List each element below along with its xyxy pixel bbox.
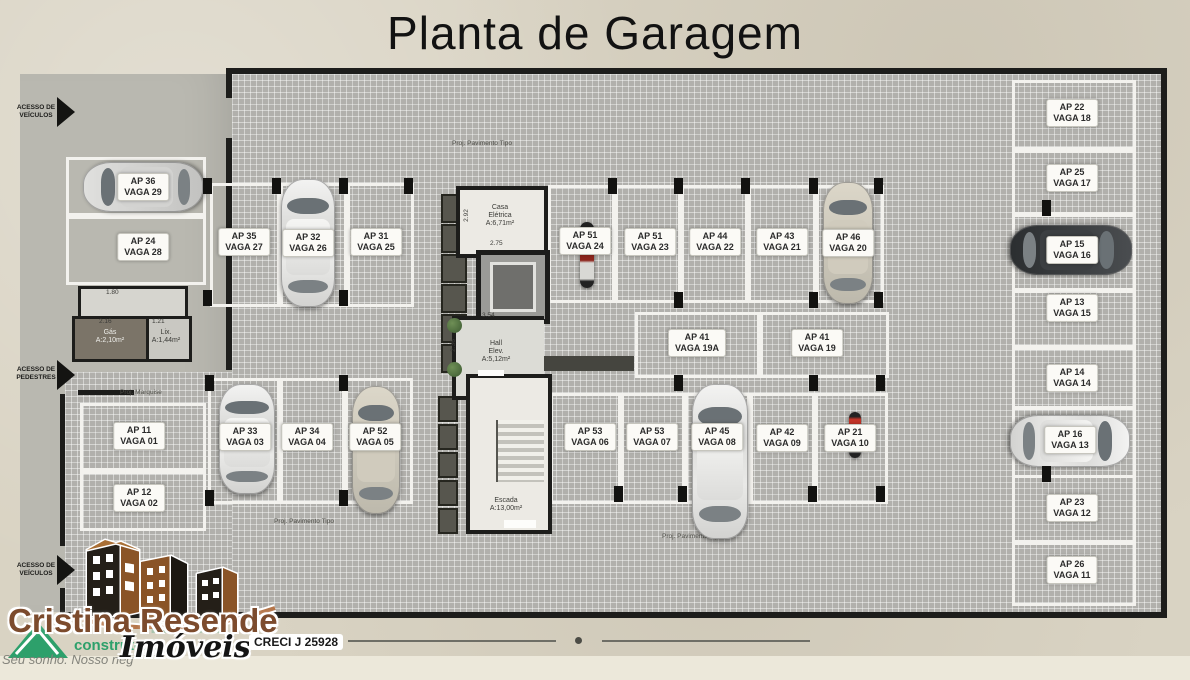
arrow-right-icon (57, 97, 75, 127)
spot-label: AP 23VAGA 12 (1046, 494, 1098, 522)
access-vehicles-top-label: ACESSO DEVEÍCULOS (14, 104, 58, 120)
spot-label: AP 25VAGA 17 (1046, 164, 1098, 192)
carousel-dot (575, 637, 582, 644)
spot-label: AP 31VAGA 25 (350, 228, 402, 256)
pillar-post (678, 486, 687, 502)
page-title: Planta de Garagem (0, 6, 1190, 60)
pillar-post (339, 178, 348, 194)
watermark-tagline: Seu sonho. Nosso neg (2, 652, 134, 667)
pillar-post (741, 178, 750, 194)
spot-label: AP 34VAGA 04 (281, 423, 333, 451)
pillar-post (339, 375, 348, 391)
spot-label: AP 43VAGA 21 (756, 228, 808, 256)
dimension-text: 1.21 (152, 318, 165, 325)
pillar-post (808, 486, 817, 502)
access-pedestrians-label: ACESSO DEPEDESTRES (14, 366, 58, 382)
pillar-post (876, 486, 885, 502)
spot-label: AP 11VAGA 01 (113, 422, 165, 450)
spot-label: AP 41VAGA 19 (791, 329, 843, 357)
spot-label: AP 51VAGA 24 (559, 227, 611, 255)
door-mat (504, 520, 536, 528)
car-top-view (692, 384, 748, 539)
pillar-post (809, 292, 818, 308)
storage-box (438, 424, 458, 450)
wall-top (226, 68, 1167, 74)
brand-subname: Imóveis (120, 630, 251, 665)
pillar-post (203, 290, 212, 306)
pillar-post (1042, 200, 1051, 216)
storage-box (438, 480, 458, 506)
dimension-text: 2.16 (99, 318, 112, 325)
stairs-treads (496, 420, 544, 482)
pillar-post (203, 178, 212, 194)
storage-box (438, 508, 458, 534)
spot-label: AP 53VAGA 06 (564, 423, 616, 451)
pillar-post (674, 375, 683, 391)
pillar-post (205, 375, 214, 391)
stairwell-label: EscadaA:13,00m² (490, 497, 522, 513)
room-gas-label: GásA:2,10m² (96, 329, 124, 345)
spot-label: AP 36VAGA 29 (117, 173, 169, 201)
spot-label: AP 45VAGA 08 (691, 423, 743, 451)
spot-label: AP 44VAGA 22 (689, 228, 741, 256)
room-lixo-label: Lix.A:1,44m² (152, 329, 180, 345)
pillar-post (205, 490, 214, 506)
pillar-post (809, 375, 818, 391)
pillar-post (1042, 466, 1051, 482)
spot-label: AP 15VAGA 16 (1046, 236, 1098, 264)
creci-badge: CRECI J 25928 (249, 634, 343, 650)
room-hall-label: HallElev.A:5,12m² (482, 340, 510, 364)
garage-floor-plan: Planta de Garagem ACESSO DEVEÍCULOS ACES… (0, 0, 1190, 680)
spot-label: AP 35VAGA 27 (218, 228, 270, 256)
pillar-post (404, 178, 413, 194)
pillar-post (874, 178, 883, 194)
spot-label: AP 53VAGA 07 (626, 423, 678, 451)
storage-box (438, 452, 458, 478)
pillar-post (614, 486, 623, 502)
divider-line (348, 640, 556, 642)
spot-label: AP 24VAGA 28 (117, 233, 169, 261)
plant-icon (447, 318, 462, 333)
spot-label: AP 42VAGA 09 (756, 424, 808, 452)
dimension-text: 2.36 (450, 339, 457, 352)
spot-label: AP 33VAGA 03 (219, 423, 271, 451)
spot-label: AP 14VAGA 14 (1046, 364, 1098, 392)
spot-label: AP 51VAGA 23 (624, 228, 676, 256)
realtor-logo: IDADE construtora Seu sonho. Nosso neg (0, 524, 345, 674)
pillar-post (674, 292, 683, 308)
spot-label: AP 41VAGA 19A (668, 329, 726, 357)
room-casa-eletrica-label: CasaElétricaA:6,71m² (486, 204, 514, 228)
wall-left-segment-a (226, 68, 232, 98)
storage-box (441, 254, 467, 283)
dimension-text: 1.80 (106, 289, 119, 296)
pillar-post (608, 178, 617, 194)
storage-box (441, 284, 467, 313)
spot-label: AP 13VAGA 15 (1046, 294, 1098, 322)
spot-label: AP 21VAGA 10 (824, 424, 876, 452)
spot-label: AP 26VAGA 11 (1046, 556, 1097, 584)
spot-label: AP 32VAGA 26 (282, 229, 334, 257)
dimension-text: 2.75 (490, 240, 503, 247)
corridor-mat (544, 356, 634, 371)
plant-icon (447, 362, 462, 377)
arrow-right-icon (57, 360, 75, 390)
annotation-proj-pavimento-tipo: Proj. Pavimento Tipo (452, 140, 512, 147)
pillar-post (874, 292, 883, 308)
pillar-post (674, 178, 683, 194)
spot-label: AP 52VAGA 05 (349, 423, 401, 451)
dimension-text: 3.54 (482, 312, 495, 319)
annotation-proj-marquise: Proj. Marquise (120, 389, 162, 396)
wall-right (1161, 68, 1167, 618)
door-mat (478, 370, 504, 376)
dimension-text: 2.92 (463, 209, 470, 222)
spot-label: AP 22VAGA 18 (1046, 99, 1098, 127)
pillar-post (339, 490, 348, 506)
pillar-post (272, 178, 281, 194)
pillar-post (809, 178, 818, 194)
divider-line (602, 640, 810, 642)
spot-label: AP 46VAGA 20 (822, 229, 874, 257)
spot-label: AP 12VAGA 02 (113, 484, 165, 512)
spot-label: AP 16VAGA 13 (1044, 426, 1096, 454)
pillar-post (876, 375, 885, 391)
pillar-post (339, 290, 348, 306)
